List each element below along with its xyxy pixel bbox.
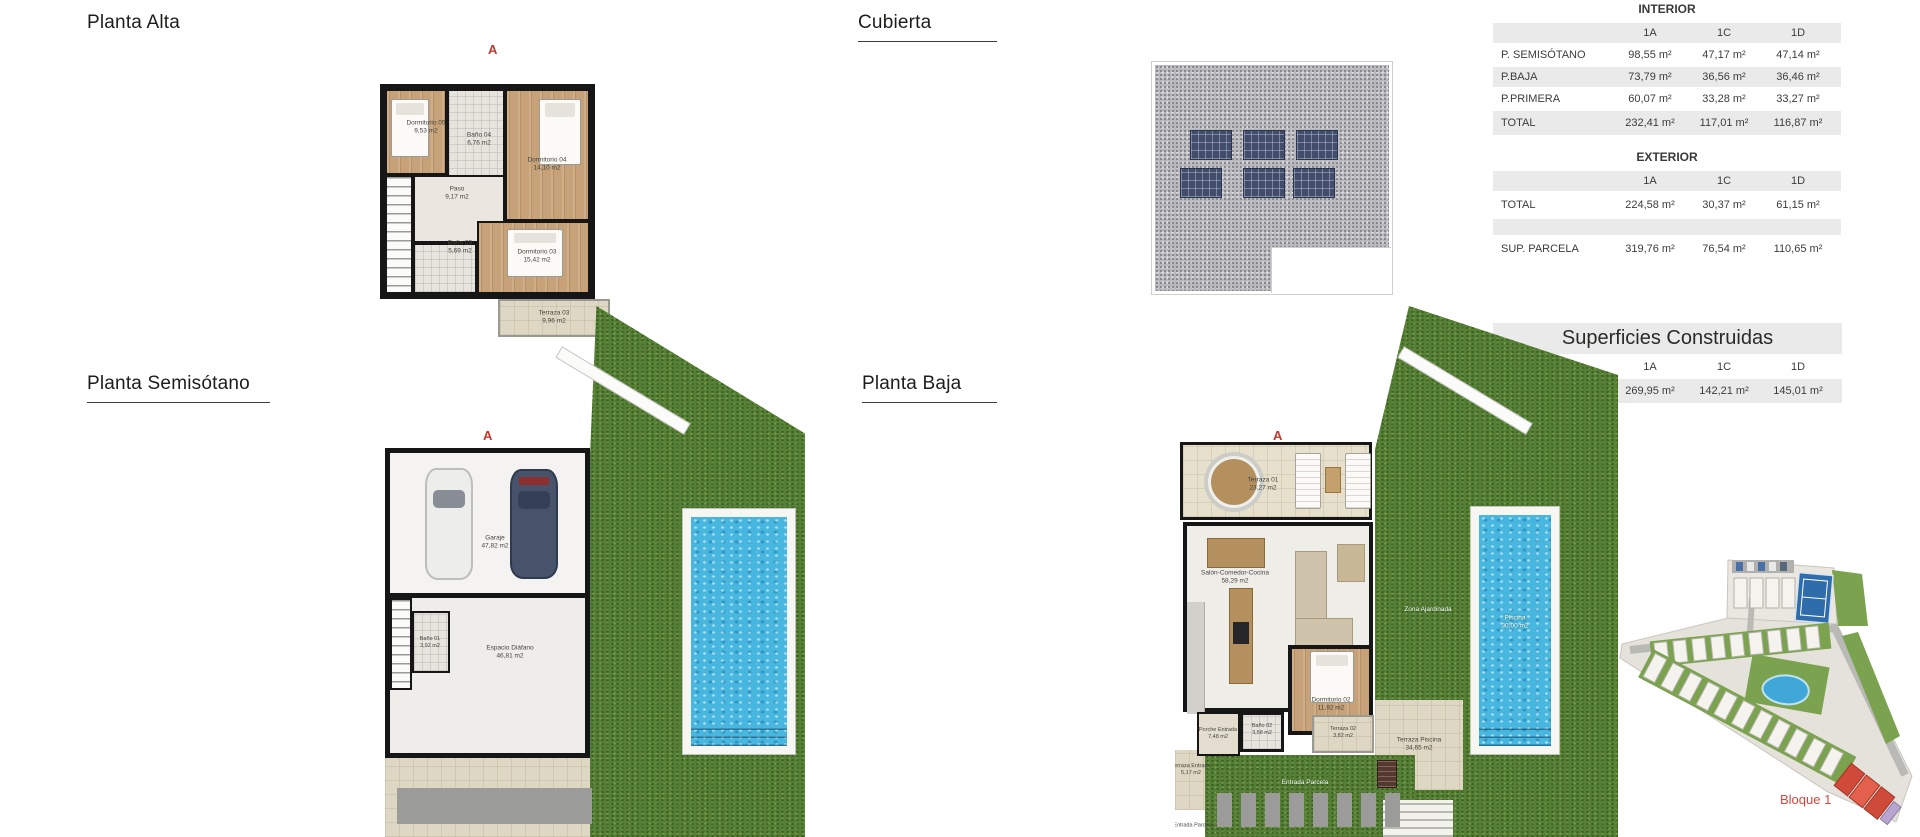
room-area: 34,65 m2 — [1397, 745, 1441, 753]
pool-water — [691, 517, 787, 746]
room-name: Dormitorio 04 — [527, 157, 566, 165]
section-marker-a: A — [483, 428, 492, 443]
cell: 47,17 m² — [1687, 49, 1761, 61]
col-1c: 1C — [1687, 27, 1761, 39]
tennis-court — [1795, 573, 1833, 624]
col-1a: 1A — [1613, 361, 1687, 373]
room-name: Porche Entrada — [1199, 727, 1237, 734]
room-area: 46,81 m2 — [486, 653, 533, 661]
cell: 232,41 m² — [1613, 117, 1687, 129]
room-area: 3,92 m2 — [420, 643, 441, 650]
cell: 30,37 m² — [1687, 199, 1761, 211]
room-label-porche-entrada: Porche Entrada 7,48 m2 — [1199, 727, 1237, 741]
room-label-entrada-parcela-bottom: Entrada Parcela — [1175, 822, 1213, 829]
col-1a: 1A — [1613, 175, 1687, 187]
room-area: 23,27 m2 — [1248, 485, 1279, 493]
room-label-terraza-02: Terraza 02 3,82 m2 — [1330, 726, 1356, 740]
cell: 269,95 m² — [1613, 385, 1687, 397]
armchair-icon — [1337, 544, 1365, 582]
bbq-icon — [1377, 760, 1397, 788]
room-label-piscina: Piscina 30,00 m2 — [1501, 615, 1528, 632]
room-label-dormitorio-03: Dormitorio 03 15,42 m2 — [517, 249, 556, 266]
solar-panel-icon — [1243, 130, 1285, 160]
room-name: Baño 03 — [448, 240, 472, 248]
row-label: TOTAL — [1493, 117, 1613, 129]
cell: 76,54 m² — [1687, 243, 1761, 255]
room-label-bano-01: Baño 01 3,92 m2 — [420, 636, 441, 650]
table-row-parcela: SUP. PARCELA 319,76 m² 76,54 m² 110,65 m… — [1493, 237, 1841, 261]
table-row: P. SEMISÓTANO 98,55 m² 47,17 m² 47,14 m² — [1493, 45, 1841, 65]
bed-icon — [539, 99, 581, 165]
planta-semisotano-building — [385, 448, 590, 758]
cubierta-plan — [1152, 58, 1392, 294]
col-1c: 1C — [1687, 175, 1761, 187]
room-name: Entrada Parcela — [1282, 779, 1329, 787]
room-area: 3,82 m2 — [1330, 733, 1356, 740]
room-label-terraza-entrada: Terraza Entrada 5,17 m2 — [1175, 763, 1211, 777]
room-name: Garaje — [481, 535, 508, 543]
col-1d: 1D — [1761, 27, 1835, 39]
room-name: Terraza 01 — [1248, 477, 1279, 485]
cell: 33,28 m² — [1687, 93, 1761, 105]
row-label: P.PRIMERA — [1493, 93, 1613, 105]
cell: 145,01 m² — [1761, 385, 1835, 397]
solar-panel-icon — [1190, 130, 1232, 160]
lounger-icon — [1345, 453, 1371, 509]
pool-steps — [691, 724, 787, 746]
room-area: 30,00 m2 — [1501, 623, 1528, 631]
cell: 36,46 m² — [1761, 71, 1835, 83]
pool-deck — [682, 508, 796, 755]
cell: 117,01 m² — [1687, 117, 1761, 129]
room-name: Terraza 03 — [539, 310, 570, 318]
room-area: 58,29 m2 — [1201, 578, 1269, 586]
car-dark-icon — [510, 469, 558, 579]
exterior-table-title: EXTERIOR — [1493, 150, 1841, 166]
solar-panel-icon — [1296, 130, 1338, 160]
sofa-icon — [1295, 618, 1353, 646]
roof-notch — [1272, 248, 1392, 294]
room-area: 47,82 m2 — [481, 543, 508, 551]
room-name: Baño 02 — [1252, 723, 1273, 730]
interior-table: INTERIOR 1A 1C 1D P. SEMISÓTANO 98,55 m²… — [1493, 2, 1841, 137]
exterior-table: EXTERIOR 1A 1C 1D TOTAL 224,58 m² 30,37 … — [1493, 150, 1841, 263]
planta-semisotano-title: Planta Semisótano — [87, 373, 270, 403]
planta-alta-building — [380, 84, 595, 299]
room-area: 11,92 m2 — [1311, 705, 1350, 713]
exterior-header-row: 1A 1C 1D — [1493, 171, 1841, 191]
floorplan-sheet: Planta Alta Cubierta Planta Semisótano P… — [0, 0, 1920, 837]
car-white-icon — [425, 468, 473, 580]
sofa-icon — [1295, 551, 1327, 623]
interior-header-row: 1A 1C 1D — [1493, 23, 1841, 43]
room-name: Espacio Diáfano — [486, 645, 533, 653]
room-name: Baño 01 — [420, 636, 441, 643]
room-label-dormitorio-02: Dormitorio 02 11,92 m2 — [1311, 697, 1350, 714]
paver-steps — [1217, 793, 1407, 827]
room-area: 9,53 m2 — [406, 128, 445, 136]
cell: 224,58 m² — [1613, 199, 1687, 211]
tennis-green — [1832, 570, 1868, 626]
pool-steps — [1479, 724, 1551, 746]
cell: 110,65 m² — [1761, 243, 1835, 255]
dining-table-icon — [1207, 538, 1265, 568]
room-area: 3,58 m2 — [1252, 730, 1273, 737]
solar-panel-icon — [1243, 168, 1285, 198]
solar-panel-icon — [1293, 168, 1335, 198]
cell: 98,55 m² — [1613, 49, 1687, 61]
solar-panel-icon — [1180, 168, 1222, 198]
row-label: SUP. PARCELA — [1493, 243, 1613, 255]
room-area: 7,48 m2 — [1199, 734, 1237, 741]
room-area: 15,42 m2 — [517, 257, 556, 265]
room-label-paso: Paso 9,17 m2 — [445, 186, 469, 203]
row-label: P.BAJA — [1493, 71, 1613, 83]
cell: 61,15 m² — [1761, 199, 1835, 211]
room-label-dormitorio-05: Dormitorio 05 9,53 m2 — [406, 120, 445, 137]
room-name: Terraza Piscina — [1397, 737, 1441, 745]
stove-icon — [1233, 622, 1249, 644]
table-row-total: TOTAL 224,58 m² 30,37 m² 61,15 m² — [1493, 193, 1841, 217]
room-name: Paso — [445, 186, 469, 194]
lounger-icon — [1295, 453, 1321, 509]
room-label-bano-04: Baño 04 6,76 m2 — [467, 132, 491, 149]
room-name: Entrada Parcela — [1175, 822, 1213, 829]
terraza-entrada-area — [1175, 750, 1205, 810]
section-marker-a: A — [1273, 428, 1282, 443]
exterior-spacer-row — [1493, 219, 1841, 235]
room-label-terraza-03: Terraza 03 9,96 m2 — [539, 310, 570, 327]
cell: 73,79 m² — [1613, 71, 1687, 83]
room-dormitorio-04 — [505, 89, 590, 221]
planta-alta-title: Planta Alta — [87, 12, 180, 34]
room-label-zona-ajardinada: Zona Ajardinada — [1404, 606, 1451, 614]
room-area: 5,69 m2 — [448, 248, 472, 256]
stairs — [390, 598, 412, 690]
room-area: 9,96 m2 — [539, 318, 570, 326]
room-name: Salón-Comedor-Cocina — [1201, 570, 1269, 578]
table-row-total: TOTAL 232,41 m² 117,01 m² 116,87 m² — [1493, 111, 1841, 135]
room-label-bano-03: Baño 03 5,69 m2 — [448, 240, 472, 257]
planta-baja-title: Planta Baja — [862, 373, 997, 403]
room-name: Zona Ajardinada — [1404, 606, 1451, 614]
col-1a: 1A — [1613, 27, 1687, 39]
room-name: Baño 04 — [467, 132, 491, 140]
cell: 47,14 m² — [1761, 49, 1835, 61]
room-name: Dormitorio 02 — [1311, 697, 1350, 705]
cell: 116,87 m² — [1761, 117, 1835, 129]
room-name: Terraza Entrada — [1175, 763, 1211, 770]
paver-steps — [397, 788, 592, 824]
cell: 142,21 m² — [1687, 385, 1761, 397]
stairs — [385, 175, 413, 294]
cubierta-title: Cubierta — [858, 12, 997, 42]
section-marker-a: A — [488, 42, 497, 57]
room-label-terraza-01: Terraza 01 23,27 m2 — [1248, 477, 1279, 494]
col-1c: 1C — [1687, 361, 1761, 373]
room-area: 14,10 m2 — [527, 165, 566, 173]
room-name: Dormitorio 03 — [517, 249, 556, 257]
room-label-espacio-diafano: Espacio Diáfano 46,81 m2 — [486, 645, 533, 662]
planta-semisotano-plan: A Garaje 47,82 m2 Baño 01 3,92 m2 Espaci… — [385, 300, 805, 837]
room-label-terraza-piscina: Terraza Piscina 34,65 m2 — [1397, 737, 1441, 754]
col-1d: 1D — [1761, 361, 1835, 373]
room-area: 9,17 m2 — [445, 194, 469, 202]
side-table-icon — [1325, 467, 1341, 493]
room-area: 5,17 m2 — [1175, 770, 1211, 777]
room-label-bano-02: Baño 02 3,58 m2 — [1252, 723, 1273, 737]
community-pool — [1763, 675, 1809, 704]
bloque-1-label: Bloque 1 — [1780, 792, 1831, 807]
room-label-salon-comedor-cocina: Salón-Comedor-Cocina 58,29 m2 — [1201, 570, 1269, 587]
table-row: P.BAJA 73,79 m² 36,56 m² 36,46 m² — [1493, 67, 1841, 87]
room-name: Terraza 02 — [1330, 726, 1356, 733]
row-label: TOTAL — [1493, 199, 1613, 211]
site-plan: Bloque 1 — [1600, 540, 1920, 837]
room-name: Dormitorio 05 — [406, 120, 445, 128]
kitchen-counter — [1187, 602, 1205, 714]
cell: 36,56 m² — [1687, 71, 1761, 83]
cell: 319,76 m² — [1613, 243, 1687, 255]
col-1d: 1D — [1761, 175, 1835, 187]
room-label-garaje: Garaje 47,82 m2 — [481, 535, 508, 552]
room-label-entrada-parcela: Entrada Parcela — [1282, 779, 1329, 787]
cell: 60,07 m² — [1613, 93, 1687, 105]
interior-table-title: INTERIOR — [1493, 2, 1841, 18]
cell: 33,27 m² — [1761, 93, 1835, 105]
row-label: P. SEMISÓTANO — [1493, 49, 1613, 61]
bed-icon — [1310, 651, 1354, 703]
planta-alta-plan: A Dormitorio 05 9,53 m2 Baño 04 6,76 m2 — [380, 42, 630, 342]
planta-baja-plan: A Terraza 01 23,27 m2 Salón-Comedor-Coci… — [1175, 300, 1620, 837]
room-area: 6,76 m2 — [467, 140, 491, 148]
site-plan-drawing — [1600, 540, 1920, 837]
room-label-dormitorio-04: Dormitorio 04 14,10 m2 — [527, 157, 566, 174]
table-row: P.PRIMERA 60,07 m² 33,28 m² 33,27 m² — [1493, 89, 1841, 109]
